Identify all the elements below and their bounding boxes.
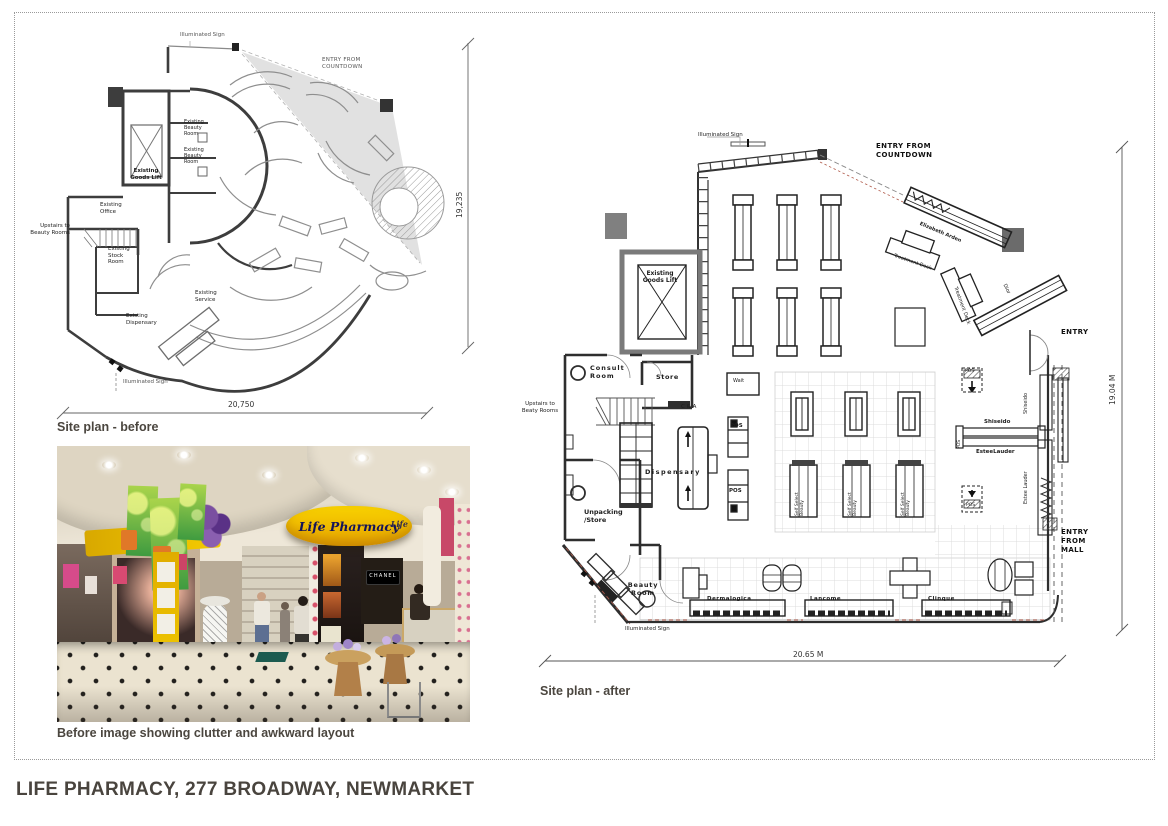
before-height-dim: 19,235 (455, 192, 464, 218)
after-pos-label-1: POS (730, 423, 743, 430)
after-store-label: Store (656, 374, 679, 382)
after-entry-label: ENTRY (1061, 328, 1089, 337)
after-shiseido-label: Shiseido (984, 419, 1010, 426)
before-photo: CHANEL Life Pharmacy Life (57, 446, 470, 722)
after-dispensary-label: Dispensary (645, 469, 701, 477)
kiosk-lit-poster (323, 554, 341, 586)
before-illuminated-sign2-label: Illuminated Sign (123, 379, 168, 386)
photo-left-poster-small (85, 576, 97, 594)
after-entry-from-mall-label: ENTRY FROM MALL (1061, 528, 1089, 554)
after-pos-label-2: POS (729, 488, 742, 495)
ceiling-light (177, 451, 191, 459)
before-plan-caption: Site plan - before (57, 420, 158, 434)
before-beauty-room-1-label: Existing Beauty Room (184, 119, 204, 137)
after-c-and-a-label: C & A (681, 404, 696, 411)
after-self-select-label-3: Self Select Beauty (901, 492, 912, 516)
pink-sign (113, 566, 127, 584)
before-service-label: Existing Service (195, 290, 217, 303)
after-estee-lauder-vertical-label: Estee Lauder (1023, 471, 1029, 504)
after-clinique-label: Clinque (928, 596, 955, 603)
after-wait-label: Wait (733, 378, 744, 384)
after-height-dim: 19.04 M (1108, 375, 1117, 405)
after-pos-label-4: POS (966, 503, 975, 508)
after-dermalogica-label: Dermalogica (707, 596, 751, 603)
after-pos-label-3: POS (965, 369, 974, 374)
after-width-dim: 20.65 M (793, 650, 823, 659)
sheet: Illuminated Sign ENTRY FROM COUNTDOWN Ex… (0, 0, 1168, 826)
after-lancome-label: Lancome (810, 596, 841, 603)
ceiling-light (417, 466, 431, 474)
ceiling-light (445, 488, 459, 496)
after-beauty-room-label: Beauty Room (625, 582, 661, 598)
orange-tag (121, 530, 137, 550)
after-self-select-label-2: Self Select Beauty (848, 492, 859, 516)
before-goods-lift-label: Existing Goods Lift (125, 168, 167, 181)
green-banner (178, 483, 207, 540)
right-red-banner (439, 498, 454, 556)
after-goods-lift-label: Existing Goods Lift (633, 270, 687, 284)
face-chart-poster (157, 614, 175, 634)
chanel-sign: CHANEL (366, 570, 400, 585)
kiosk-lit-poster (323, 592, 341, 618)
chanel-display (361, 558, 403, 624)
after-estee-lauder-joined-label: EsteeLauder (976, 449, 1015, 456)
sunglasses-stand-cap (200, 596, 230, 606)
after-plan-caption: Site plan - after (540, 684, 630, 698)
after-entry-countdown-label: ENTRY FROM COUNTDOWN (876, 142, 932, 160)
after-unpacking-label: Unpacking /Store (584, 509, 623, 525)
before-entry-countdown-label: ENTRY FROM COUNTDOWN (322, 57, 363, 70)
floor-mat (255, 652, 289, 662)
before-dispensary-label: Existing Dispensary (126, 313, 157, 326)
photo-caption: Before image showing clutter and awkward… (57, 726, 354, 740)
after-self-select-label-1: Self Select Beauty (795, 492, 806, 516)
ceiling-light (102, 461, 116, 469)
before-beauty-room-2-label: Existing Beauty Room (184, 147, 204, 165)
after-shiseido-vertical-label: Shiseido (1023, 393, 1029, 414)
before-plan-drawing (40, 25, 480, 435)
face-chart-poster (157, 588, 175, 608)
life-pharmacy-sign-text: Life Pharmacy (299, 519, 400, 534)
right-white-pillar (423, 506, 441, 606)
ceiling-light (355, 454, 369, 462)
face-chart-poster (157, 562, 175, 582)
after-illuminated-sign-bottom-label: Illuminated Sign (625, 626, 670, 633)
life-pharmacy-sign: Life Pharmacy Life (286, 506, 412, 546)
life-sign-right-text: Life (391, 519, 408, 529)
after-upstairs-label: Upstairs to Beaty Rooms (520, 401, 560, 414)
sheet-title: LIFE PHARMACY, 277 BROADWAY, NEWMARKET (16, 779, 474, 801)
product-table (325, 650, 371, 708)
after-consult-room-label: Consult Room (590, 365, 625, 381)
metal-stand (387, 682, 421, 718)
after-pos-vertical-label: POS (957, 440, 962, 449)
before-illuminated-sign-label: Illuminated Sign (180, 32, 225, 39)
before-upstairs-label: Upstairs to Beauty Rooms (28, 223, 70, 236)
ceiling-light (262, 471, 276, 479)
before-stock-room-label: Existing Stock Room (108, 246, 130, 266)
before-office-label: Existing Office (100, 202, 122, 215)
photo-left-poster-pink (63, 564, 79, 588)
before-width-dim: 20,750 (228, 400, 254, 409)
after-illuminated-sign-top-label: Illuminated Sign (698, 132, 743, 139)
